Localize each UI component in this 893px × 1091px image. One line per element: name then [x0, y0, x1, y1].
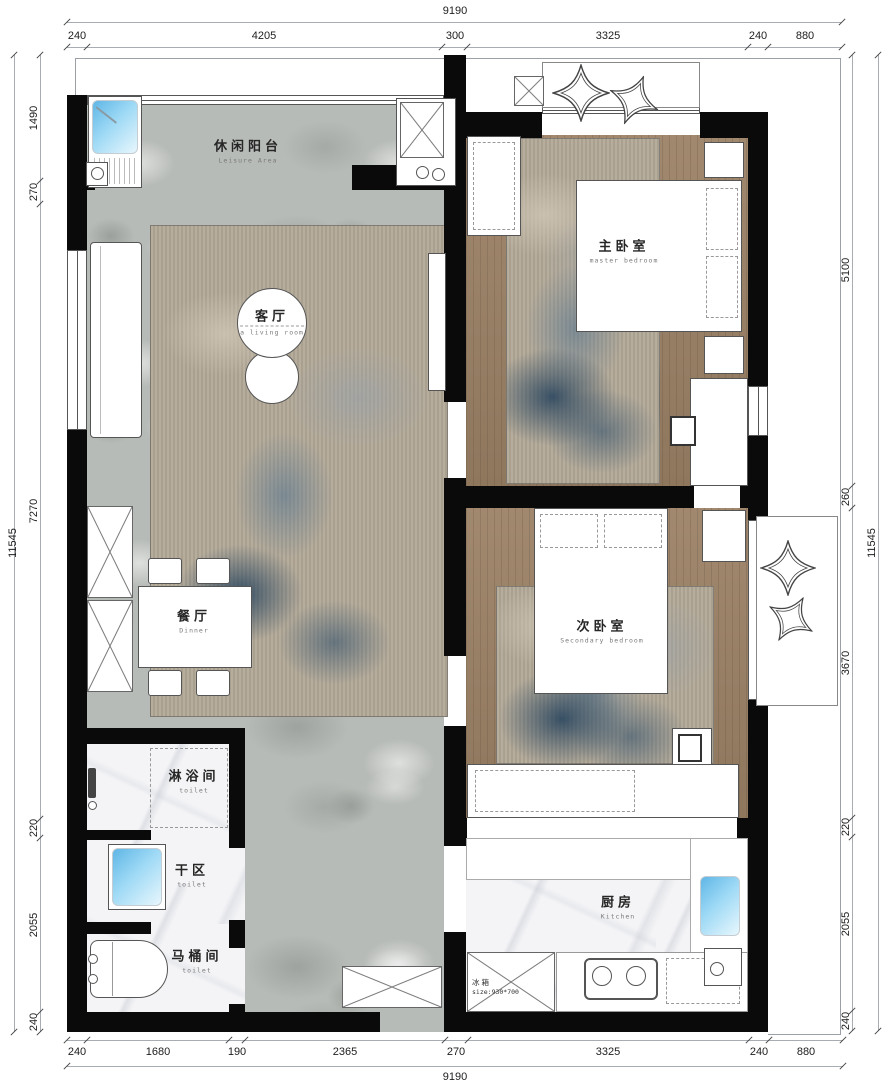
shaft-box — [514, 76, 544, 106]
dim-top-2: 300 — [446, 30, 464, 42]
tv-console — [428, 253, 446, 391]
dim-right-5: 240 — [840, 1012, 852, 1030]
label-secondary-bedroom: 次卧室 Secondary bedroom — [560, 616, 644, 645]
dimline-bottom-segments — [67, 1040, 843, 1041]
dining-chair — [196, 670, 230, 696]
dim-bottom-1: 1680 — [146, 1046, 170, 1058]
dim-right-0: 5100 — [840, 258, 852, 282]
fridge-note-size: size:930*700 — [472, 988, 519, 996]
master-nightstand-top — [704, 142, 744, 178]
dim-bottom-total: 9190 — [443, 1071, 467, 1083]
wall-bedroom-divider-a — [444, 486, 694, 508]
wall-bath-right-2 — [229, 920, 245, 948]
kitchen-outlet-circle — [710, 962, 724, 976]
wall-kitchen-divider-a — [444, 818, 467, 838]
dining-chair — [196, 558, 230, 584]
tick — [839, 1062, 846, 1069]
label-dining-room: 餐厅 Dinner — [177, 606, 211, 635]
master-wardrobe-top-inner — [473, 142, 515, 230]
master-right-window — [748, 386, 768, 436]
dim-bottom-0: 240 — [68, 1046, 86, 1058]
master-stool — [670, 416, 696, 446]
dim-bottom-3: 2365 — [333, 1046, 357, 1058]
dim-left-5: 240 — [28, 1013, 40, 1031]
label-shower-room: 淋浴间 toilet — [168, 766, 219, 795]
shower-control — [88, 801, 97, 810]
dimline-top-segments — [67, 47, 842, 48]
dim-bottom-2: 190 — [228, 1046, 246, 1058]
dimline-right-segments — [852, 55, 853, 1031]
wall-right-1 — [748, 135, 768, 386]
master-pillow-2 — [706, 256, 738, 318]
dim-right-4: 2055 — [840, 912, 852, 936]
wall-center-5 — [444, 932, 466, 1012]
wall-bedroom-divider-b — [740, 486, 768, 508]
tick — [10, 1028, 17, 1035]
plumbing-point-1 — [88, 954, 98, 964]
wall-master-top-left — [466, 112, 542, 138]
balcony-cabinet-xbox — [400, 102, 444, 158]
dim-bottom-5: 3325 — [596, 1046, 620, 1058]
label-toilet-room: 马桶间 toilet — [171, 946, 222, 975]
kitchen-sink — [700, 876, 740, 936]
wall-left-outer — [67, 95, 87, 1032]
master-wardrobe-bottom — [690, 378, 748, 486]
outer-line-right — [840, 58, 841, 1035]
tick — [839, 1036, 846, 1043]
toilet — [90, 940, 168, 998]
dim-left-0: 1490 — [28, 106, 40, 130]
coffee-table-small — [245, 350, 299, 404]
sofa — [90, 242, 142, 438]
dim-top-4: 240 — [749, 30, 767, 42]
tick — [874, 1027, 881, 1034]
outer-line-bottom-right — [768, 1034, 841, 1035]
dimline-top-total — [67, 22, 842, 23]
dim-right-1: 260 — [840, 488, 852, 506]
secondary-desk — [702, 510, 746, 562]
tick — [838, 43, 845, 50]
dim-left-1: 270 — [28, 183, 40, 201]
label-kitchen: 厨房 Kitchen — [601, 892, 635, 921]
wall-bath-top — [67, 728, 245, 744]
dim-bottom-7: 880 — [797, 1046, 815, 1058]
tick — [838, 18, 845, 25]
secondary-nightstand-inner — [678, 734, 702, 762]
dim-top-total: 9190 — [443, 5, 467, 17]
master-nightstand-bottom — [704, 336, 744, 374]
dim-top-3: 3325 — [596, 30, 620, 42]
hob-circle-1 — [416, 166, 429, 179]
wall-right-3 — [748, 700, 768, 1032]
wall-bath-right-1 — [229, 744, 245, 848]
dim-right-total: 11545 — [866, 528, 878, 558]
wall-kitchen-divider-b — [737, 818, 768, 838]
dining-chair — [148, 558, 182, 584]
dim-top-1: 4205 — [252, 30, 276, 42]
burner-2 — [626, 966, 646, 986]
sofa-back-line — [100, 246, 101, 434]
floor-plan: 冰箱 size:930*700 休闲阳台 Leisure Area 客厅 a l… — [0, 0, 893, 1091]
dim-top-0: 240 — [68, 30, 86, 42]
dimline-right-total — [878, 55, 879, 1031]
dining-chair — [148, 670, 182, 696]
label-living-room: 客厅 a living room — [240, 306, 304, 337]
burner-1 — [592, 966, 612, 986]
dim-left-3: 220 — [28, 819, 40, 837]
wall-shower-dry-divider — [67, 830, 151, 840]
plumbing-point-2 — [88, 974, 98, 984]
dining-cabinet-2 — [87, 600, 133, 692]
floor-drain-circle — [91, 167, 104, 180]
secondary-pillow-1 — [540, 514, 598, 548]
label-dry-area: 干区 toilet — [175, 860, 209, 889]
living-left-window — [67, 250, 87, 430]
entry-shoe-cabinet — [342, 966, 442, 1008]
secondary-pillow-2 — [604, 514, 662, 548]
hob-circle-2 — [432, 168, 445, 181]
dim-left-4: 2055 — [28, 913, 40, 937]
dim-left-total: 11545 — [7, 528, 19, 558]
dim-right-3: 220 — [840, 818, 852, 836]
label-master-bedroom: 主卧室 master bedroom — [590, 236, 659, 265]
wall-dry-wc-divider — [67, 922, 151, 934]
dining-cabinet-1 — [87, 506, 133, 598]
toilet-tank-line — [112, 942, 113, 996]
secondary-dresser-inner — [475, 770, 635, 812]
master-pillow-1 — [706, 188, 738, 250]
dim-left-2: 7270 — [28, 499, 40, 523]
wall-bath-right-3 — [229, 1004, 245, 1012]
vanity-sink — [112, 848, 162, 906]
dim-bottom-4: 270 — [447, 1046, 465, 1058]
dim-top-5: 880 — [796, 30, 814, 42]
dim-right-2: 3670 — [840, 651, 852, 675]
label-leisure-balcony: 休闲阳台 Leisure Area — [214, 136, 282, 165]
fridge-note-label: 冰箱 — [472, 978, 519, 988]
dim-bottom-6: 240 — [750, 1046, 768, 1058]
outer-line-left-top — [75, 58, 76, 96]
dimline-bottom-total — [67, 1066, 843, 1067]
wall-center-2 — [444, 185, 466, 402]
fridge-note: 冰箱 size:930*700 — [472, 978, 519, 996]
entry-opening — [380, 1012, 444, 1032]
shower-head-icon — [88, 768, 96, 798]
